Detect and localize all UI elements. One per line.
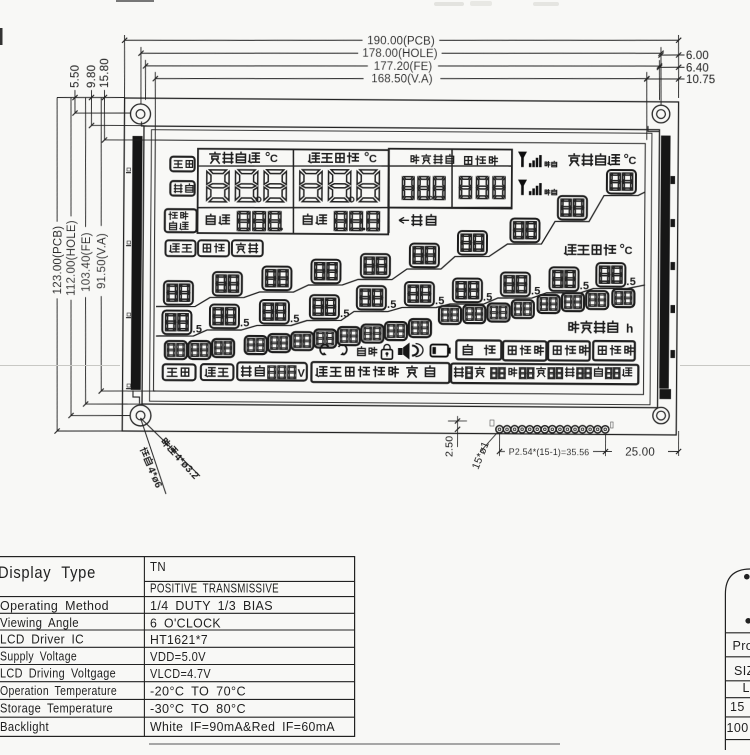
svg-text:Display Type: Display Type — [0, 564, 96, 582]
svg-text:Pro: Pro — [733, 639, 750, 653]
svg-text:Viewing Angle: Viewing Angle — [0, 616, 79, 630]
svg-text:10.75: 10.75 — [686, 74, 715, 86]
svg-text:POSITIVE TRANSMISSIVE: POSITIVE TRANSMISSIVE — [150, 582, 279, 596]
svg-text:100: 100 — [727, 721, 749, 735]
svg-text:1/4 DUTY 1/3 BIAS: 1/4 DUTY 1/3 BIAS — [150, 599, 273, 613]
svg-text:White IF=90mA&Red IF=60mA: White IF=90mA&Red IF=60mA — [150, 720, 335, 734]
svg-text:190.00(PCB): 190.00(PCB) — [367, 35, 435, 47]
svg-text:6.40: 6.40 — [686, 63, 709, 75]
svg-text:Operating Method: Operating Method — [0, 599, 109, 613]
svg-text:TN: TN — [150, 560, 166, 574]
svg-text:168.50(V.A): 168.50(V.A) — [371, 73, 433, 85]
svg-text:LCD Driver IC: LCD Driver IC — [0, 633, 84, 647]
svg-text:P2.54*(15-1)=35.56: P2.54*(15-1)=35.56 — [509, 447, 590, 458]
svg-text:123.00(PCB): 123.00(PCB) — [52, 226, 64, 295]
svg-text:V: V — [297, 368, 305, 380]
svg-text:L: L — [743, 681, 750, 695]
svg-text:-30°C TO 80°C: -30°C TO 80°C — [150, 702, 246, 716]
svg-text:HT1621*7: HT1621*7 — [150, 633, 208, 647]
svg-text:Storage Temperature: Storage Temperature — [0, 702, 113, 716]
svg-text:C: C — [270, 153, 278, 165]
svg-text:-20°C TO 70°C: -20°C TO 70°C — [150, 685, 246, 699]
svg-text:Backlight: Backlight — [0, 720, 49, 734]
svg-text:15: 15 — [730, 700, 745, 714]
svg-text:112.00(HOLE): 112.00(HOLE) — [66, 220, 79, 296]
svg-text:9.80: 9.80 — [86, 65, 98, 88]
svg-text:6 O'CLOCK: 6 O'CLOCK — [150, 617, 221, 631]
svg-text:178.00(HOLE): 178.00(HOLE) — [362, 48, 438, 61]
svg-text:15.80: 15.80 — [99, 58, 111, 88]
svg-text:SIZ: SIZ — [734, 664, 750, 678]
svg-text:103.40(FE): 103.40(FE) — [80, 232, 92, 292]
svg-text:LCD Driving Voltgage: LCD Driving Voltgage — [0, 667, 116, 681]
svg-text:91.50(V.A): 91.50(V.A) — [96, 233, 108, 289]
svg-text:VLCD=4.7V: VLCD=4.7V — [150, 667, 211, 681]
svg-text:Supply Voltage: Supply Voltage — [0, 650, 77, 664]
svg-text:5.50: 5.50 — [69, 65, 81, 88]
svg-text:25.00: 25.00 — [625, 446, 655, 458]
svg-text:.5: .5 — [626, 276, 636, 288]
svg-text:177.20(FE): 177.20(FE) — [374, 61, 433, 73]
svg-text:h: h — [626, 321, 634, 335]
svg-text:Operation Temperature: Operation Temperature — [0, 684, 117, 698]
svg-text:C: C — [369, 153, 377, 165]
svg-text:C: C — [628, 155, 636, 167]
svg-text:C: C — [624, 245, 632, 257]
svg-text:6.00: 6.00 — [686, 50, 709, 62]
svg-text:2.50: 2.50 — [444, 436, 456, 457]
svg-text:VDD=5.0V: VDD=5.0V — [150, 650, 206, 664]
